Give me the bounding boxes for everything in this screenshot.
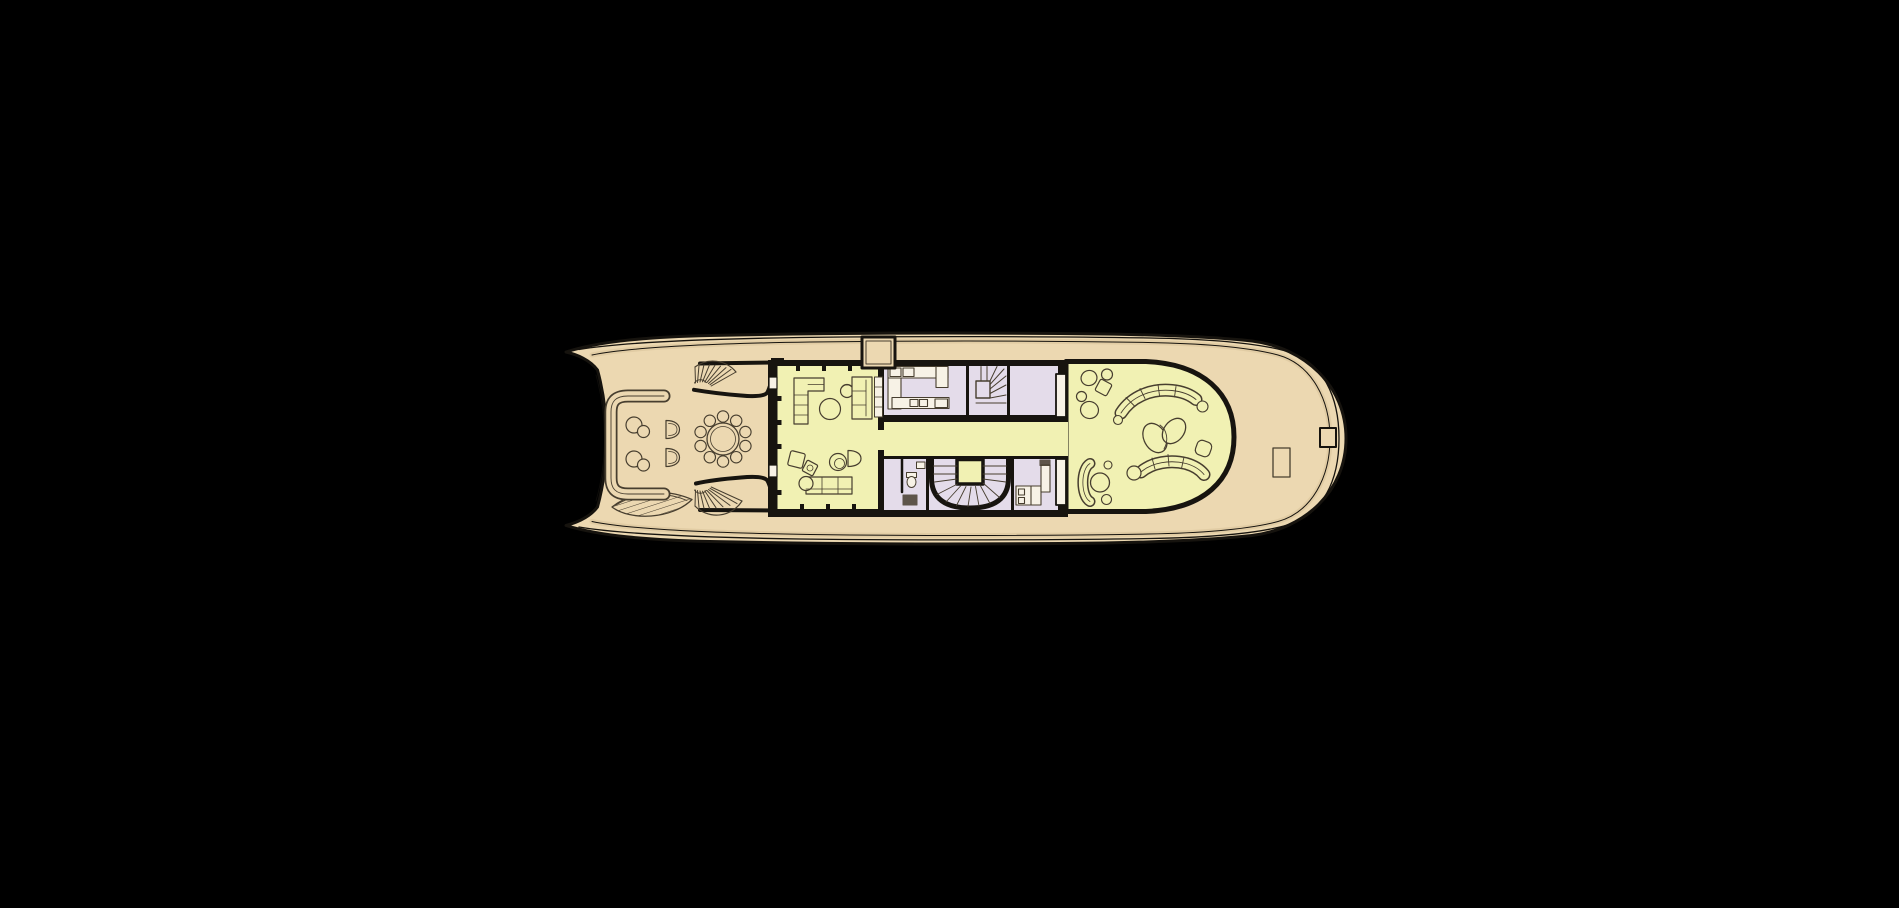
- sofa-starboard: [852, 377, 872, 419]
- sideboard: [875, 377, 883, 417]
- pantry-cabin: [1010, 366, 1058, 415]
- stair-void: [957, 460, 983, 485]
- dining-table-top: [707, 423, 739, 455]
- cabin-wardrobe: [1041, 465, 1050, 492]
- sofa-arm: [799, 477, 813, 491]
- bulwark-box: [1320, 428, 1336, 447]
- corridor: [884, 422, 1068, 456]
- lounge-door-bottom: [769, 465, 777, 477]
- page-background: [0, 0, 1899, 908]
- aft-door-upper: [1056, 374, 1066, 417]
- stern-hatch: [1273, 448, 1290, 477]
- mast-housing: [862, 337, 895, 368]
- aft-side-table: [1197, 401, 1208, 412]
- lounge-door-top: [769, 377, 777, 389]
- wc-cabinet: [903, 495, 917, 505]
- diamond-chair: [787, 450, 805, 468]
- wc-sink: [917, 462, 926, 469]
- yacht-floor-plan: [0, 0, 1899, 908]
- aft-ottoman: [1127, 466, 1141, 480]
- cabin-fixture: [1040, 460, 1050, 466]
- foredeck-bottom-wall: [700, 510, 776, 511]
- aft-round-table: [1091, 473, 1110, 492]
- corridor-door-west: [874, 430, 886, 450]
- aft-door-lower: [1056, 459, 1066, 505]
- wc-toilet: [907, 477, 916, 488]
- foredeck-top-wall: [700, 363, 776, 364]
- coffee-table: [820, 399, 841, 420]
